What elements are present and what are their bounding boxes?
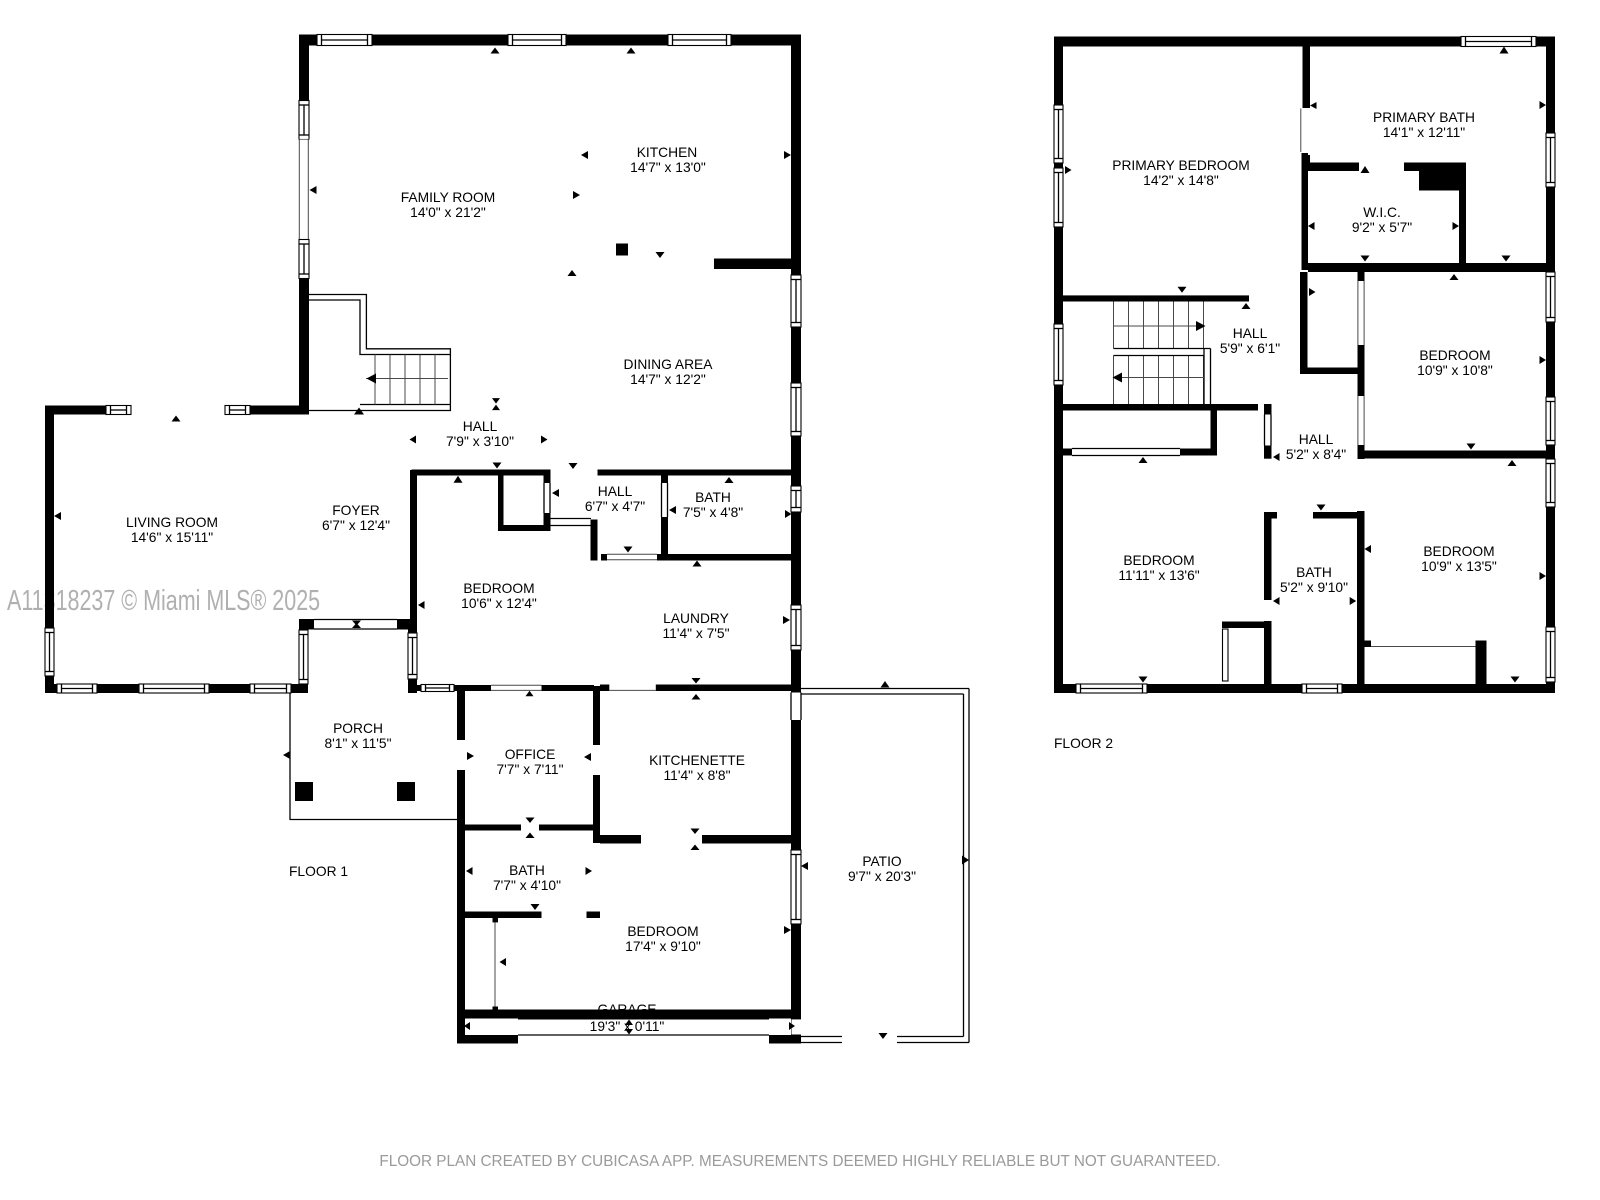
svg-text:14'6" x 15'11": 14'6" x 15'11" [131, 530, 213, 545]
svg-text:7'7" x 4'10": 7'7" x 4'10" [493, 878, 561, 893]
svg-text:BATH: BATH [695, 490, 731, 505]
svg-text:FLOOR 1: FLOOR 1 [289, 864, 348, 879]
svg-text:BATH: BATH [1296, 565, 1332, 580]
svg-text:19'3" x 0'11": 19'3" x 0'11" [590, 1019, 665, 1034]
svg-text:BEDROOM: BEDROOM [1423, 544, 1494, 559]
svg-text:BEDROOM: BEDROOM [1123, 553, 1194, 568]
svg-text:7'9" x 3'10": 7'9" x 3'10" [446, 434, 514, 449]
svg-text:9'2" x 5'7": 9'2" x 5'7" [1352, 220, 1412, 235]
svg-text:HALL: HALL [1233, 326, 1268, 341]
svg-text:KITCHENETTE: KITCHENETTE [649, 753, 745, 768]
svg-text:OFFICE: OFFICE [505, 747, 556, 762]
svg-text:PRIMARY BEDROOM: PRIMARY BEDROOM [1112, 158, 1249, 173]
svg-text:BEDROOM: BEDROOM [463, 581, 534, 596]
svg-text:PRIMARY BATH: PRIMARY BATH [1373, 110, 1475, 125]
svg-text:7'7" x 7'11": 7'7" x 7'11" [497, 762, 564, 777]
svg-text:10'6" x 12'4": 10'6" x 12'4" [461, 596, 537, 611]
svg-text:KITCHEN: KITCHEN [637, 145, 698, 160]
svg-text:11'4" x 7'5": 11'4" x 7'5" [663, 626, 730, 641]
svg-text:BATH: BATH [509, 863, 545, 878]
svg-text:PORCH: PORCH [333, 721, 383, 736]
svg-text:5'2" x 8'4": 5'2" x 8'4" [1286, 447, 1346, 462]
svg-text:FAMILY ROOM: FAMILY ROOM [401, 190, 496, 205]
svg-text:14'0" x 21'2": 14'0" x 21'2" [410, 205, 486, 220]
svg-text:HALL: HALL [463, 419, 498, 434]
svg-text:7'5" x 4'8": 7'5" x 4'8" [683, 505, 743, 520]
svg-text:14'1" x 12'11": 14'1" x 12'11" [1383, 125, 1465, 140]
svg-text:FOYER: FOYER [332, 503, 380, 518]
svg-text:6'7" x 4'7": 6'7" x 4'7" [585, 499, 645, 514]
svg-text:PATIO: PATIO [862, 854, 902, 869]
svg-text:W.I.C.: W.I.C. [1363, 205, 1401, 220]
svg-text:14'2" x 14'8": 14'2" x 14'8" [1143, 173, 1219, 188]
svg-text:LAUNDRY: LAUNDRY [663, 611, 729, 626]
svg-text:DINING AREA: DINING AREA [624, 357, 714, 372]
svg-text:10'9" x 13'5": 10'9" x 13'5" [1421, 559, 1497, 574]
svg-text:HALL: HALL [598, 484, 633, 499]
svg-text:FLOOR 2: FLOOR 2 [1054, 736, 1113, 751]
svg-text:14'7" x 12'2": 14'7" x 12'2" [630, 372, 706, 387]
svg-text:5'2" x 9'10": 5'2" x 9'10" [1280, 580, 1348, 595]
svg-text:5'9" x 6'1": 5'9" x 6'1" [1220, 341, 1280, 356]
svg-text:HALL: HALL [1299, 432, 1334, 447]
svg-text:BEDROOM: BEDROOM [1419, 348, 1490, 363]
svg-text:FLOOR PLAN CREATED BY CUBICASA: FLOOR PLAN CREATED BY CUBICASA APP. MEAS… [379, 1153, 1220, 1170]
svg-text:BEDROOM: BEDROOM [627, 924, 698, 939]
svg-text:10'9" x 10'8": 10'9" x 10'8" [1417, 363, 1493, 378]
svg-text:17'4" x 9'10": 17'4" x 9'10" [625, 939, 701, 954]
svg-text:8'1" x 11'5": 8'1" x 11'5" [325, 736, 392, 751]
svg-text:GARAGE: GARAGE [597, 1002, 656, 1017]
svg-text:14'7" x 13'0": 14'7" x 13'0" [630, 160, 706, 175]
svg-text:11'11" x 13'6": 11'11" x 13'6" [1118, 568, 1199, 583]
svg-text:11'4" x 8'8": 11'4" x 8'8" [664, 768, 731, 783]
svg-text:9'7" x 20'3": 9'7" x 20'3" [848, 869, 916, 884]
svg-text:6'7" x 12'4": 6'7" x 12'4" [322, 518, 390, 533]
svg-text:LIVING ROOM: LIVING ROOM [126, 515, 218, 530]
